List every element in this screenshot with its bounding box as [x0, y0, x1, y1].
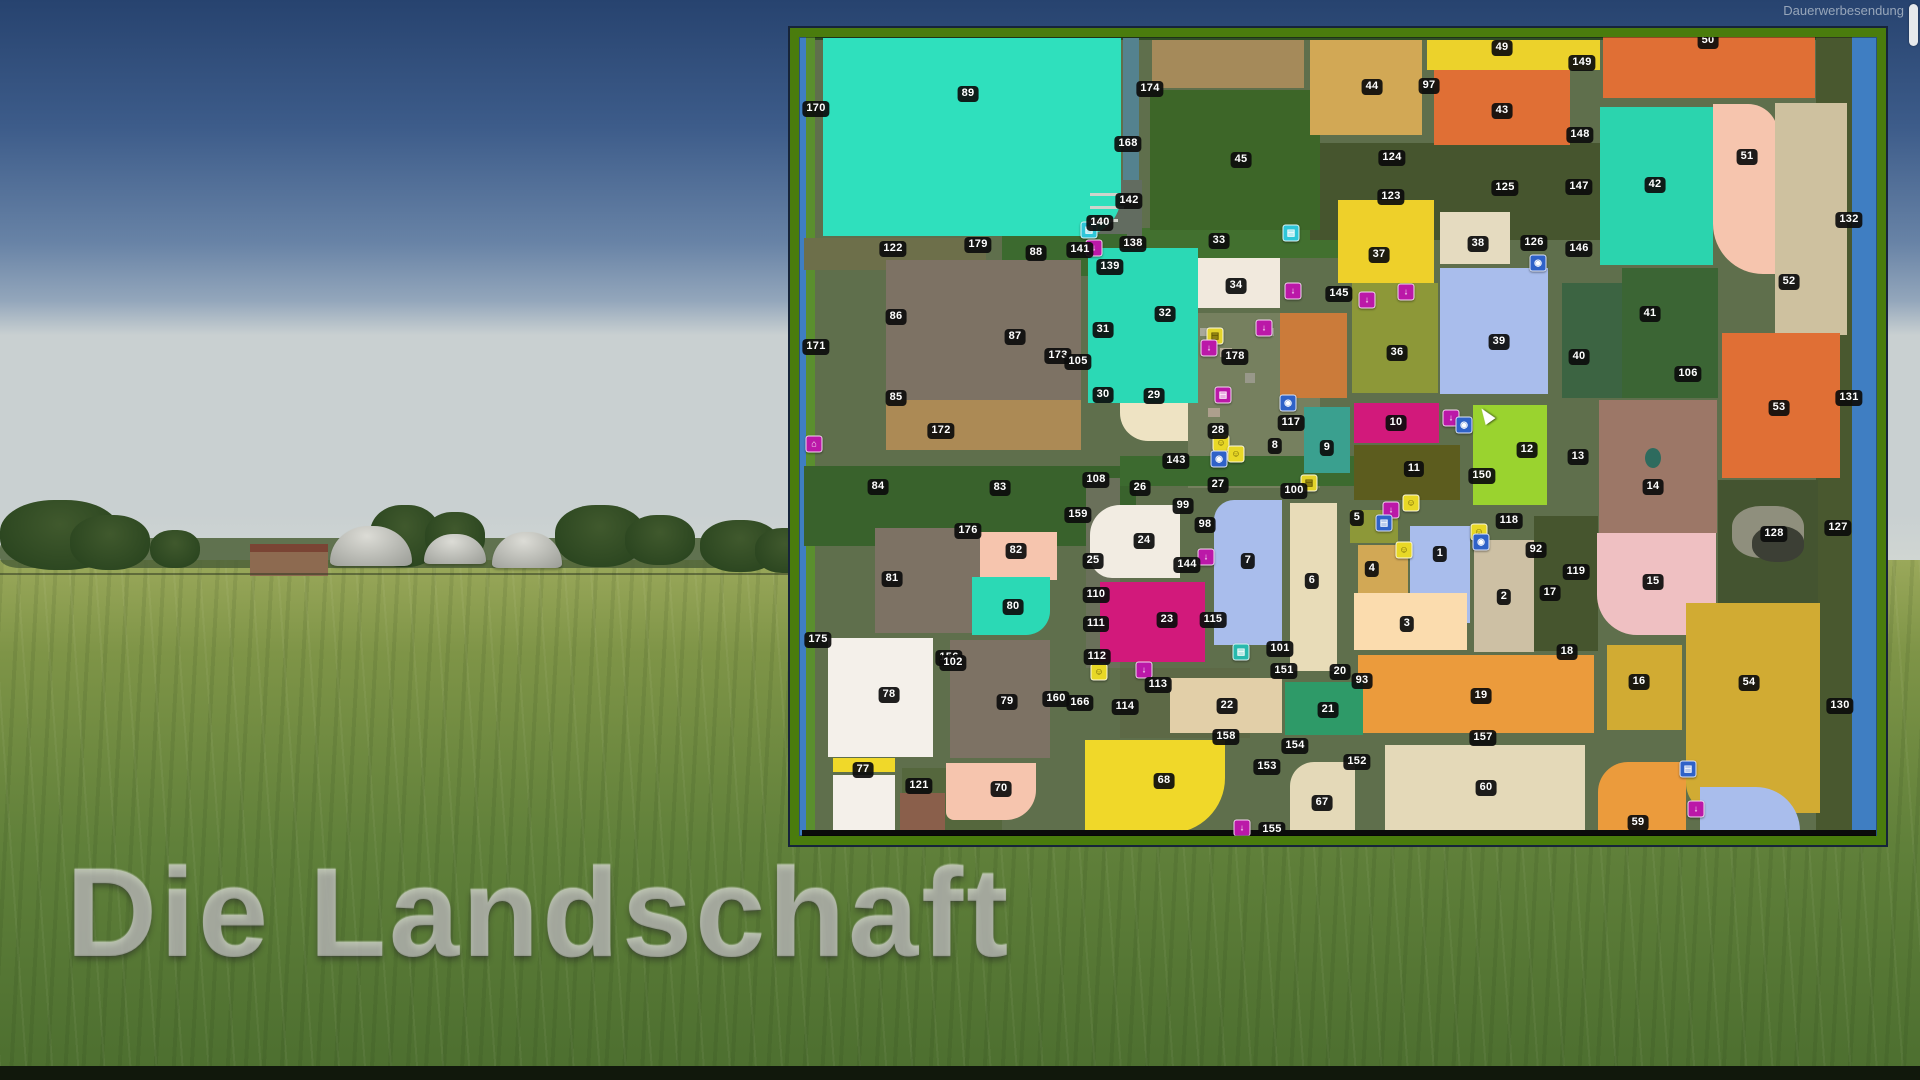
field-label-4: 4 [1365, 561, 1379, 577]
field-label-127: 127 [1824, 520, 1851, 536]
field-brown-sw [900, 793, 945, 835]
field-label-155: 155 [1258, 822, 1285, 838]
field-label-53: 53 [1769, 400, 1790, 416]
field-label-87: 87 [1005, 329, 1026, 345]
field-label-160: 160 [1042, 691, 1069, 707]
field-label-141: 141 [1066, 242, 1093, 258]
bottom-letterbox [0, 1066, 1920, 1080]
page-title: Die Landschaft [66, 850, 1011, 976]
field-label-118: 118 [1496, 513, 1523, 529]
field-label-150: 150 [1468, 468, 1495, 484]
field-label-113: 113 [1145, 677, 1172, 693]
field-label-36: 36 [1387, 345, 1408, 361]
field-label-8: 8 [1268, 438, 1282, 454]
field-label-119: 119 [1563, 564, 1590, 580]
field-label-5: 5 [1350, 510, 1364, 526]
field-label-166: 166 [1066, 695, 1093, 711]
field-label-128: 128 [1760, 526, 1787, 542]
field-label-39: 39 [1489, 334, 1510, 350]
field-label-151: 151 [1270, 663, 1297, 679]
shop-icon: ⌂ [806, 436, 823, 453]
field-label-176: 176 [954, 523, 981, 539]
field-label-44: 44 [1362, 79, 1383, 95]
field-label-30: 30 [1093, 387, 1114, 403]
field-label-126: 126 [1520, 235, 1547, 251]
field-label-27: 27 [1208, 477, 1229, 493]
field-label-86: 86 [886, 309, 907, 325]
download-icon: ↓ [1688, 801, 1705, 818]
field-label-29: 29 [1144, 388, 1165, 404]
field-label-1: 1 [1433, 546, 1447, 562]
field-white-sw [833, 775, 895, 835]
field-label-158: 158 [1212, 729, 1239, 745]
field-label-17: 17 [1540, 585, 1561, 601]
field-label-84: 84 [868, 479, 889, 495]
field-label-102: 102 [939, 655, 966, 671]
field-label-28: 28 [1208, 423, 1229, 439]
field-label-21: 21 [1318, 702, 1339, 718]
field-label-124: 124 [1378, 150, 1405, 166]
field-label-171: 171 [802, 339, 829, 355]
field-label-31: 31 [1093, 322, 1114, 338]
field-label-22: 22 [1217, 698, 1238, 714]
field-label-117: 117 [1278, 415, 1305, 431]
field-label-82: 82 [1006, 543, 1027, 559]
field-label-111: 111 [1083, 616, 1109, 632]
field-label-153: 153 [1253, 759, 1280, 775]
field-39 [1440, 268, 1548, 394]
download-icon: ↓ [1136, 662, 1153, 679]
field-label-101: 101 [1266, 641, 1293, 657]
field-label-41: 41 [1640, 306, 1661, 322]
field-label-32: 32 [1155, 306, 1176, 322]
map-bottom-bar [802, 830, 1876, 842]
field-label-11: 11 [1404, 461, 1424, 477]
field-label-100: 100 [1280, 483, 1307, 499]
field-label-179: 179 [964, 237, 991, 253]
terrain-right-water [1852, 28, 1886, 845]
field-label-97: 97 [1419, 78, 1440, 94]
field-label-3: 3 [1400, 616, 1414, 632]
field-54 [1686, 603, 1820, 813]
field-label-50: 50 [1698, 33, 1719, 49]
field-label-89: 89 [958, 86, 979, 102]
field-label-152: 152 [1343, 754, 1370, 770]
fuel-icon: ◉ [1530, 255, 1547, 272]
field-86 [886, 260, 1081, 400]
field-14-pond [1645, 448, 1661, 468]
field-label-157: 157 [1469, 730, 1496, 746]
field-label-139: 139 [1096, 259, 1123, 275]
field-label-18: 18 [1557, 644, 1578, 660]
field-label-59: 59 [1628, 815, 1649, 831]
field-41 [1622, 268, 1718, 398]
field-label-142: 142 [1115, 193, 1142, 209]
field-label-81: 81 [882, 571, 903, 587]
field-label-106: 106 [1674, 366, 1701, 382]
field-label-24: 24 [1134, 533, 1155, 549]
field-label-45: 45 [1231, 152, 1252, 168]
field-label-178: 178 [1221, 349, 1248, 365]
field-label-123: 123 [1377, 189, 1404, 205]
field-label-132: 132 [1835, 212, 1862, 228]
terrain-forest-119 [1534, 516, 1598, 651]
station-icon: ▤ [1283, 225, 1300, 242]
ad-watermark: Dauerwerbesendung [1783, 3, 1904, 18]
field-label-25: 25 [1083, 553, 1104, 569]
field-label-122: 122 [879, 241, 906, 257]
field-label-98: 98 [1195, 517, 1216, 533]
field-label-7: 7 [1241, 553, 1255, 569]
worker-icon: ☺ [1403, 495, 1420, 512]
field-label-146: 146 [1565, 241, 1592, 257]
field-label-147: 147 [1565, 179, 1592, 195]
field-label-13: 13 [1568, 449, 1589, 465]
document-icon: ▤ [1376, 515, 1393, 532]
field-label-131: 131 [1835, 390, 1862, 406]
field-label-125: 125 [1491, 180, 1518, 196]
field-label-105: 105 [1064, 354, 1091, 370]
field-35 [1280, 313, 1347, 398]
field-label-130: 130 [1826, 698, 1853, 714]
field-label-68: 68 [1154, 773, 1175, 789]
field-label-172: 172 [927, 423, 954, 439]
field-label-51: 51 [1737, 149, 1758, 165]
field-label-108: 108 [1082, 472, 1109, 488]
field-label-80: 80 [1003, 599, 1024, 615]
worker-icon: ☺ [1228, 446, 1245, 463]
field-label-83: 83 [990, 480, 1011, 496]
field-label-88: 88 [1026, 245, 1047, 261]
shop-icon: ▤ [1233, 644, 1250, 661]
village-building [1245, 373, 1255, 383]
field-label-9: 9 [1320, 440, 1334, 456]
field-label-23: 23 [1157, 612, 1178, 628]
field-label-37: 37 [1369, 247, 1390, 263]
field-label-175: 175 [804, 632, 831, 648]
field-label-110: 110 [1083, 587, 1110, 603]
map-panel: 1708917416814214014113913817988122868785… [790, 28, 1886, 845]
field-label-143: 143 [1162, 453, 1189, 469]
fuel-icon: ◉ [1473, 534, 1490, 551]
download-icon: ↓ [1285, 283, 1302, 300]
field-label-10: 10 [1386, 415, 1407, 431]
field-label-93: 93 [1352, 673, 1373, 689]
tree-clump [150, 530, 200, 568]
field-label-16: 16 [1629, 674, 1650, 690]
field-label-144: 144 [1173, 557, 1200, 573]
worker-icon: ☺ [1396, 542, 1413, 559]
fuel-icon: ◉ [1456, 417, 1473, 434]
field-label-92: 92 [1526, 542, 1547, 558]
field-label-159: 159 [1064, 507, 1091, 523]
field-label-170: 170 [802, 101, 829, 117]
tree-clump [70, 515, 150, 570]
field-label-77: 77 [853, 762, 874, 778]
document-icon: ▤ [1680, 761, 1697, 778]
field-40 [1562, 283, 1624, 398]
farm-building [250, 544, 328, 576]
field-label-12: 12 [1517, 442, 1538, 458]
field-89 [823, 38, 1121, 236]
field-label-140: 140 [1086, 215, 1113, 231]
download-icon: ↓ [1359, 292, 1376, 309]
field-label-54: 54 [1739, 675, 1760, 691]
field-label-15: 15 [1643, 574, 1664, 590]
field-label-2: 2 [1497, 589, 1511, 605]
field-label-6: 6 [1305, 573, 1319, 589]
field-label-99: 99 [1173, 498, 1194, 514]
field-label-114: 114 [1112, 699, 1139, 715]
field-label-33: 33 [1209, 233, 1230, 249]
field-label-154: 154 [1281, 738, 1308, 754]
field-label-145: 145 [1325, 286, 1352, 302]
field-label-40: 40 [1569, 349, 1590, 365]
download-icon: ↓ [1256, 320, 1273, 337]
field-51 [1713, 104, 1778, 274]
field-label-49: 49 [1492, 40, 1513, 56]
field-label-42: 42 [1645, 177, 1666, 193]
field-label-52: 52 [1779, 274, 1800, 290]
download-icon: ↓ [1201, 340, 1218, 357]
fuel-icon: ◉ [1280, 395, 1297, 412]
worker-icon: ☺ [1091, 664, 1108, 681]
field-label-26: 26 [1130, 480, 1151, 496]
field-label-20: 20 [1330, 664, 1351, 680]
field-label-115: 115 [1200, 612, 1227, 628]
field-label-19: 19 [1471, 688, 1492, 704]
field-label-14: 14 [1643, 479, 1664, 495]
tree-clump [625, 515, 695, 565]
field-label-79: 79 [997, 694, 1018, 710]
field-14 [1599, 400, 1717, 533]
field-label-174: 174 [1136, 81, 1163, 97]
field-label-67: 67 [1312, 795, 1333, 811]
field-tan-north [1152, 40, 1304, 88]
fence-line [0, 573, 790, 575]
village-building [1208, 408, 1220, 417]
field-label-148: 148 [1566, 127, 1593, 143]
field-label-112: 112 [1084, 649, 1111, 665]
field-85 [886, 400, 1081, 450]
field-label-168: 168 [1114, 136, 1141, 152]
field-label-70: 70 [991, 781, 1012, 797]
scrollbar-thumb[interactable] [1909, 4, 1918, 46]
fuel-icon: ◉ [1211, 451, 1228, 468]
field-label-60: 60 [1476, 780, 1497, 796]
field-label-85: 85 [886, 390, 907, 406]
field-label-43: 43 [1492, 103, 1513, 119]
field-23 [1100, 582, 1205, 662]
field-label-38: 38 [1468, 236, 1489, 252]
field-label-78: 78 [879, 687, 900, 703]
download-icon: ↓ [1234, 820, 1251, 837]
field-label-149: 149 [1568, 55, 1595, 71]
field-37 [1338, 200, 1434, 283]
field-label-121: 121 [905, 778, 932, 794]
field-label-138: 138 [1119, 236, 1146, 252]
field-label-34: 34 [1226, 278, 1247, 294]
download-icon: ↓ [1398, 284, 1415, 301]
train-icon: ▤ [1215, 387, 1232, 404]
